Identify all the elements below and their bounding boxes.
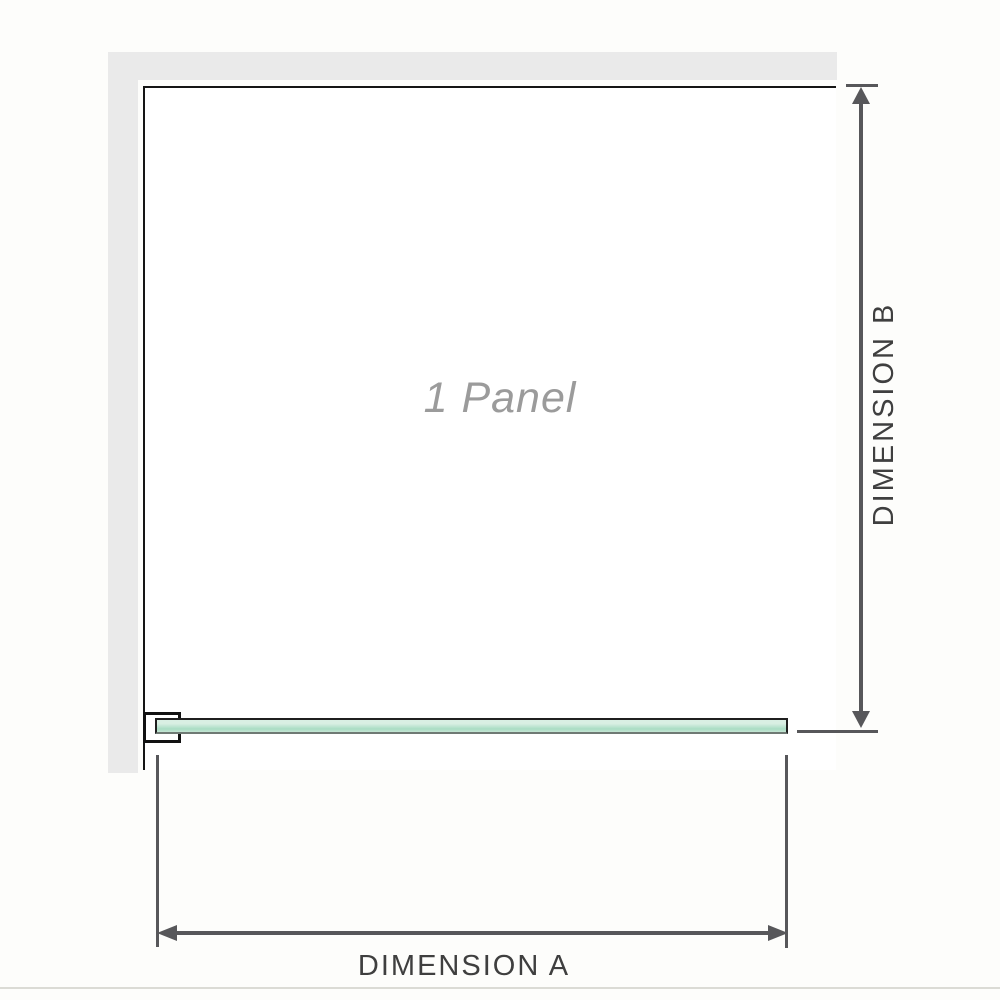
arrowhead-up-icon bbox=[852, 87, 870, 104]
panel-label-box: 1 Panel bbox=[350, 372, 650, 424]
image-bottom-edge bbox=[0, 987, 1000, 989]
dimension-b-line bbox=[859, 99, 863, 714]
wall-left-bar bbox=[108, 52, 138, 773]
panel-label: 1 Panel bbox=[424, 374, 577, 423]
wall-top-bar bbox=[108, 52, 837, 80]
arrowhead-down-icon bbox=[852, 711, 870, 728]
dimension-b-bottom-tick bbox=[797, 730, 878, 733]
dimension-b-label: DIMENSION B bbox=[868, 302, 901, 527]
dimension-a-label: DIMENSION A bbox=[358, 950, 570, 983]
dimension-a-right-extension-line bbox=[785, 755, 788, 948]
dimension-a-label-box: DIMENSION A bbox=[314, 948, 614, 984]
shower-screen-diagram: 1 Panel DIMENSION B DIMENSION A bbox=[0, 0, 1000, 1000]
dimension-a-line bbox=[162, 931, 782, 935]
glass-panel-bar bbox=[155, 718, 788, 734]
dimension-a-left-extension-line bbox=[156, 755, 159, 947]
arrowhead-right-icon bbox=[768, 925, 788, 941]
panel-outline bbox=[143, 86, 836, 770]
dimension-b-label-box: DIMENSION B bbox=[864, 264, 904, 564]
arrowhead-left-icon bbox=[157, 925, 177, 941]
